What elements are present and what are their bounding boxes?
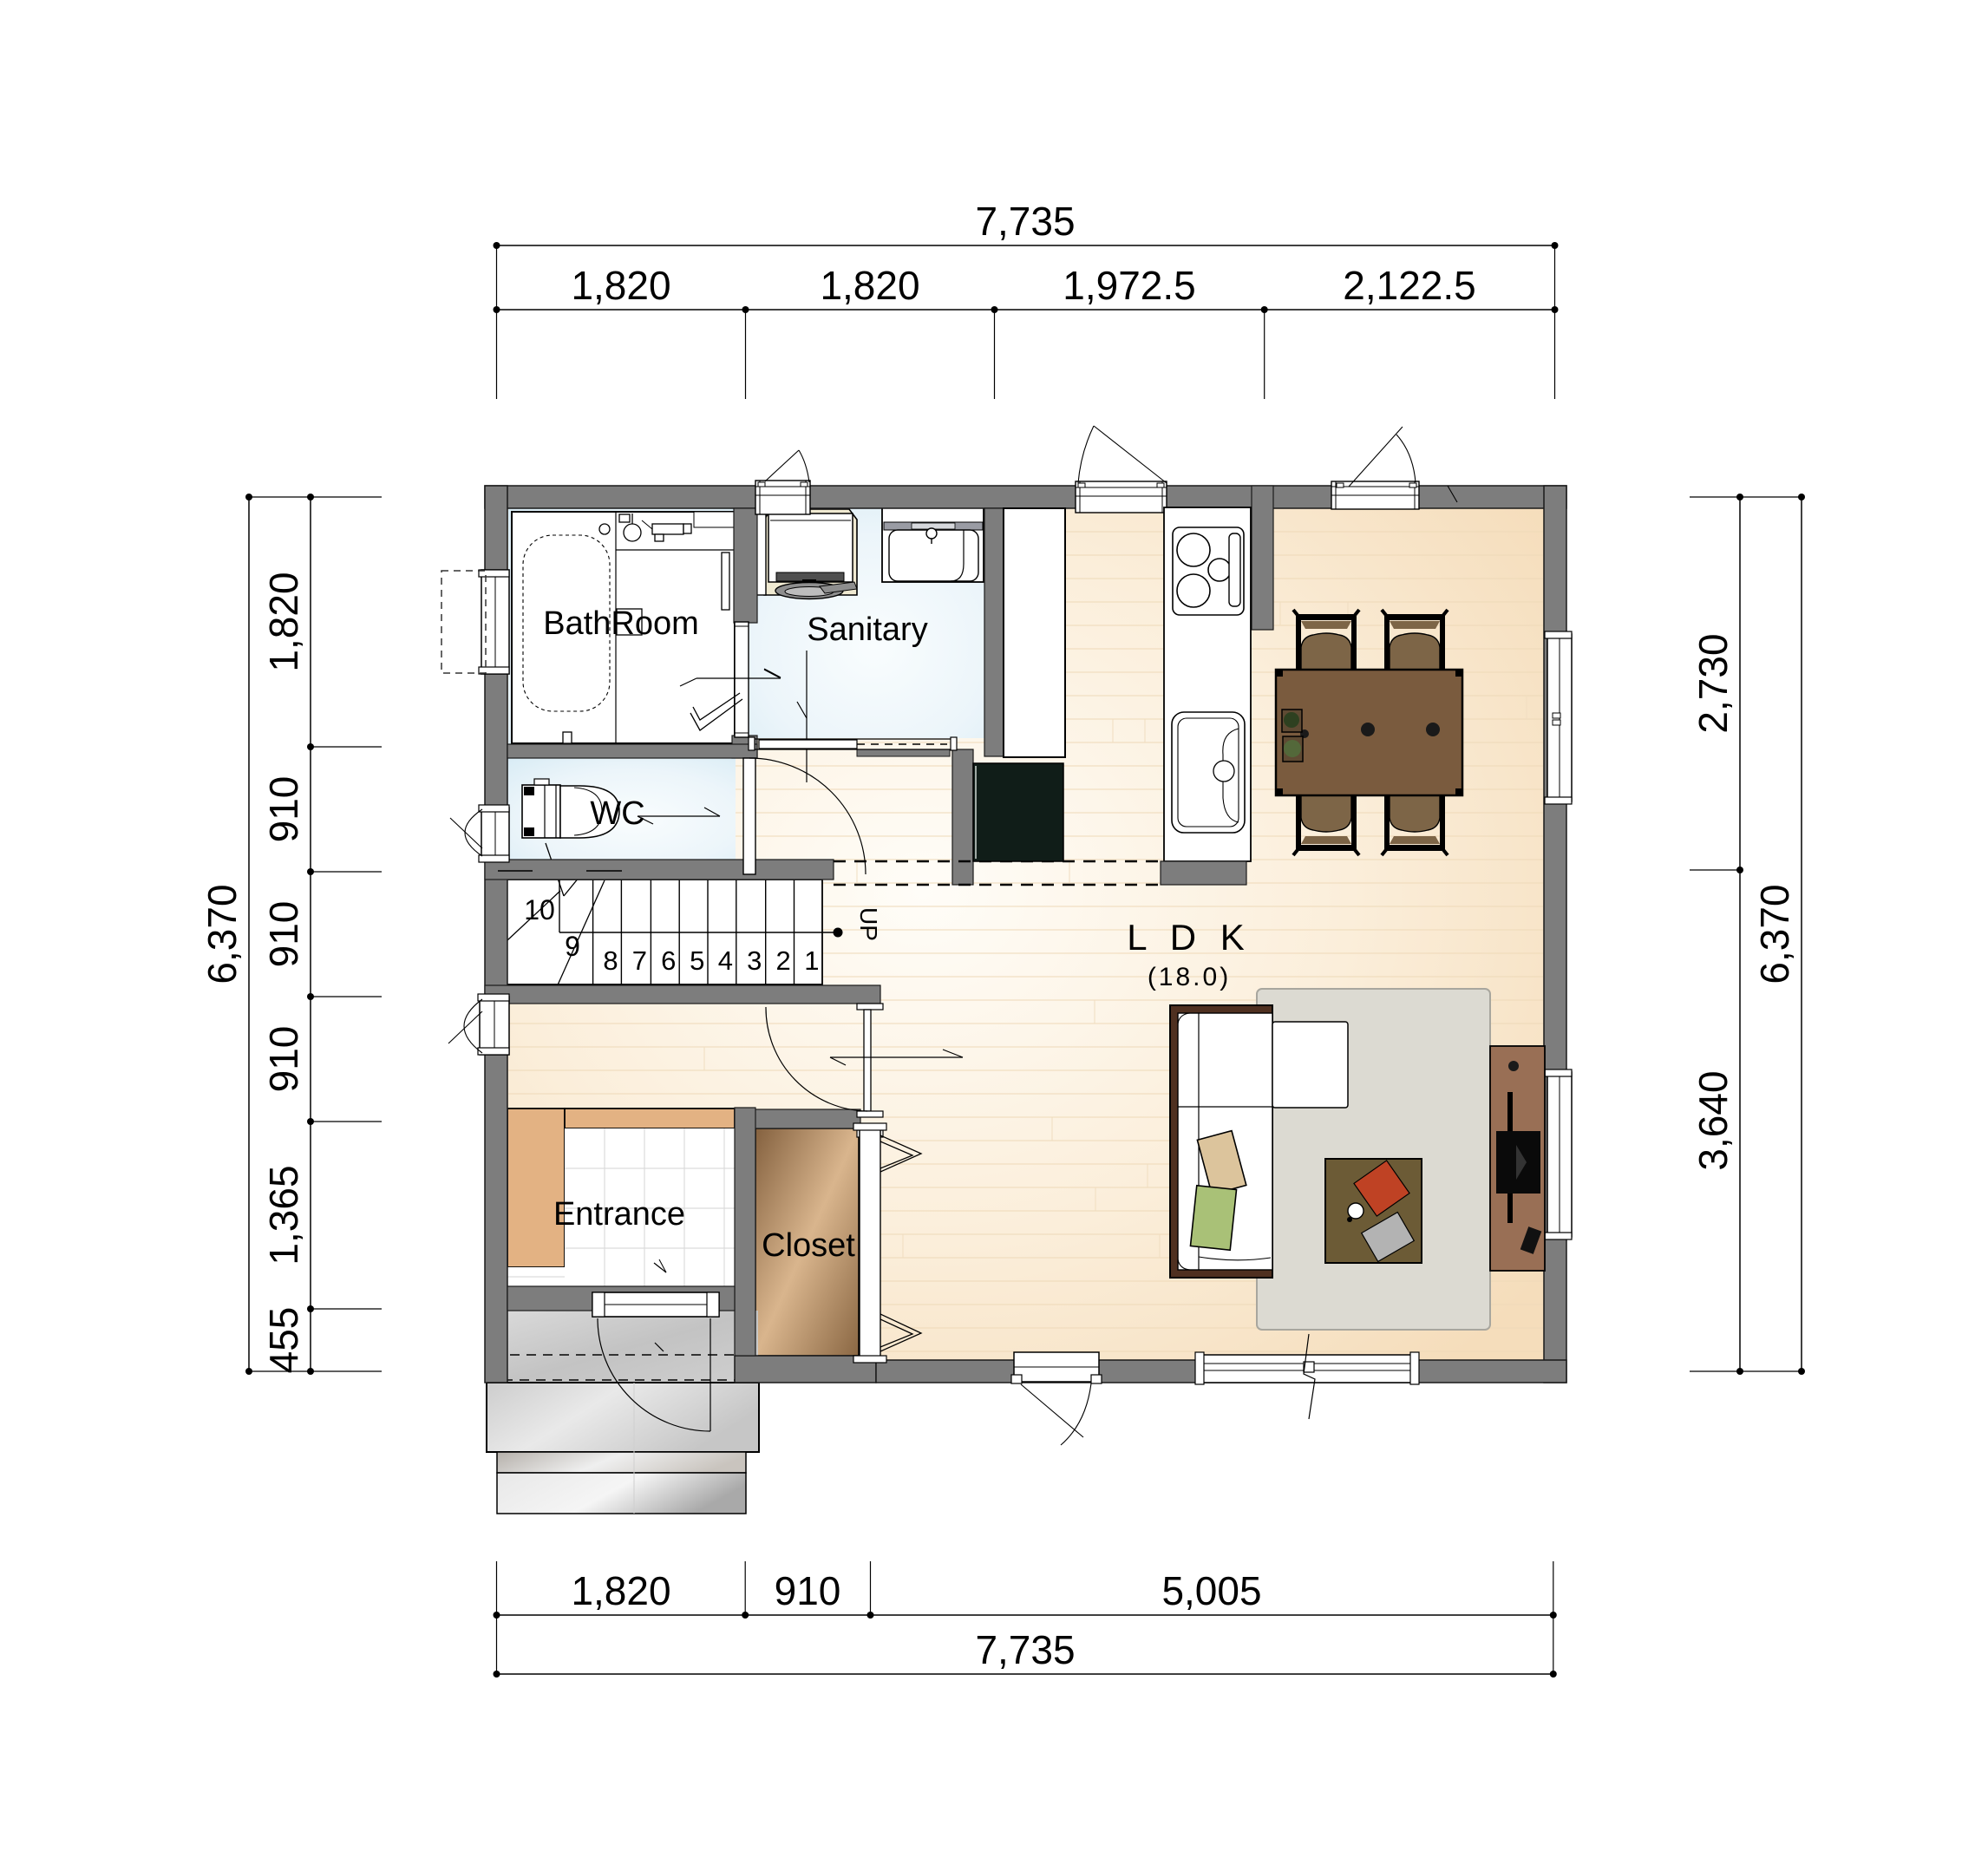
svg-text:7: 7 — [632, 945, 647, 976]
svg-text:WC: WC — [590, 795, 644, 832]
svg-text:910: 910 — [261, 1026, 306, 1093]
svg-text:7,735: 7,735 — [975, 1627, 1075, 1672]
svg-text:3: 3 — [747, 945, 762, 976]
svg-text:8: 8 — [603, 945, 618, 976]
svg-text:2: 2 — [775, 945, 790, 976]
svg-text:1: 1 — [804, 945, 819, 976]
svg-text:1,820: 1,820 — [820, 263, 919, 308]
svg-text:(18.0): (18.0) — [1148, 963, 1231, 991]
svg-text:1,820: 1,820 — [261, 572, 306, 671]
svg-text:5: 5 — [690, 945, 704, 976]
svg-text:6,370: 6,370 — [1752, 884, 1797, 984]
svg-text:6,370: 6,370 — [199, 884, 245, 984]
svg-text:1,820: 1,820 — [571, 1568, 670, 1613]
svg-text:910: 910 — [775, 1568, 841, 1613]
svg-text:910: 910 — [261, 901, 306, 968]
svg-text:3,640: 3,640 — [1690, 1070, 1736, 1170]
svg-text:UP: UP — [855, 907, 882, 941]
svg-text:Entrance: Entrance — [553, 1196, 685, 1233]
svg-text:1,365: 1,365 — [261, 1165, 306, 1265]
svg-text:4: 4 — [718, 945, 733, 976]
svg-text:7,735: 7,735 — [975, 199, 1075, 244]
svg-text:L D K: L D K — [1127, 917, 1251, 958]
svg-text:910: 910 — [261, 776, 306, 843]
svg-text:1,972.5: 1,972.5 — [1063, 263, 1195, 308]
svg-text:2,730: 2,730 — [1690, 633, 1736, 733]
svg-text:1,820: 1,820 — [571, 263, 670, 308]
svg-text:Sanitary: Sanitary — [807, 612, 927, 648]
svg-text:455: 455 — [261, 1307, 306, 1374]
svg-text:5,005: 5,005 — [1161, 1568, 1261, 1613]
svg-text:9: 9 — [565, 931, 580, 962]
svg-text:2,122.5: 2,122.5 — [1343, 263, 1475, 308]
svg-text:BathRoom: BathRoom — [543, 605, 699, 642]
svg-text:6: 6 — [661, 945, 676, 976]
svg-text:Closet: Closet — [762, 1227, 855, 1264]
